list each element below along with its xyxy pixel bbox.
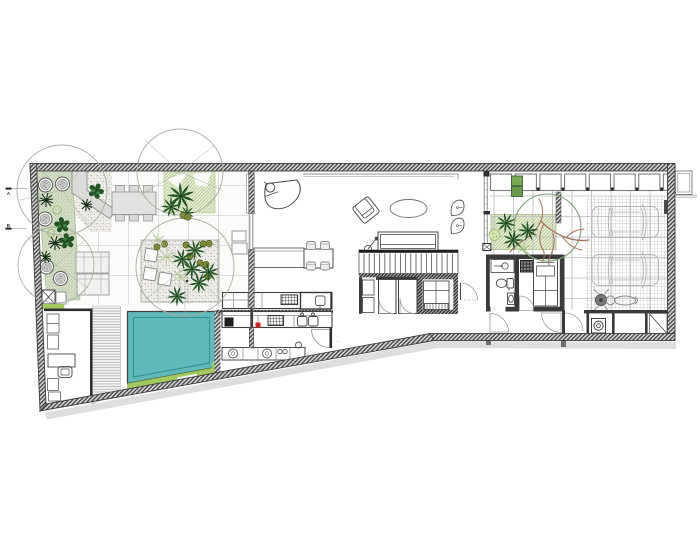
- svg-text:·· ·····: ·· ·····: [333, 340, 341, 344]
